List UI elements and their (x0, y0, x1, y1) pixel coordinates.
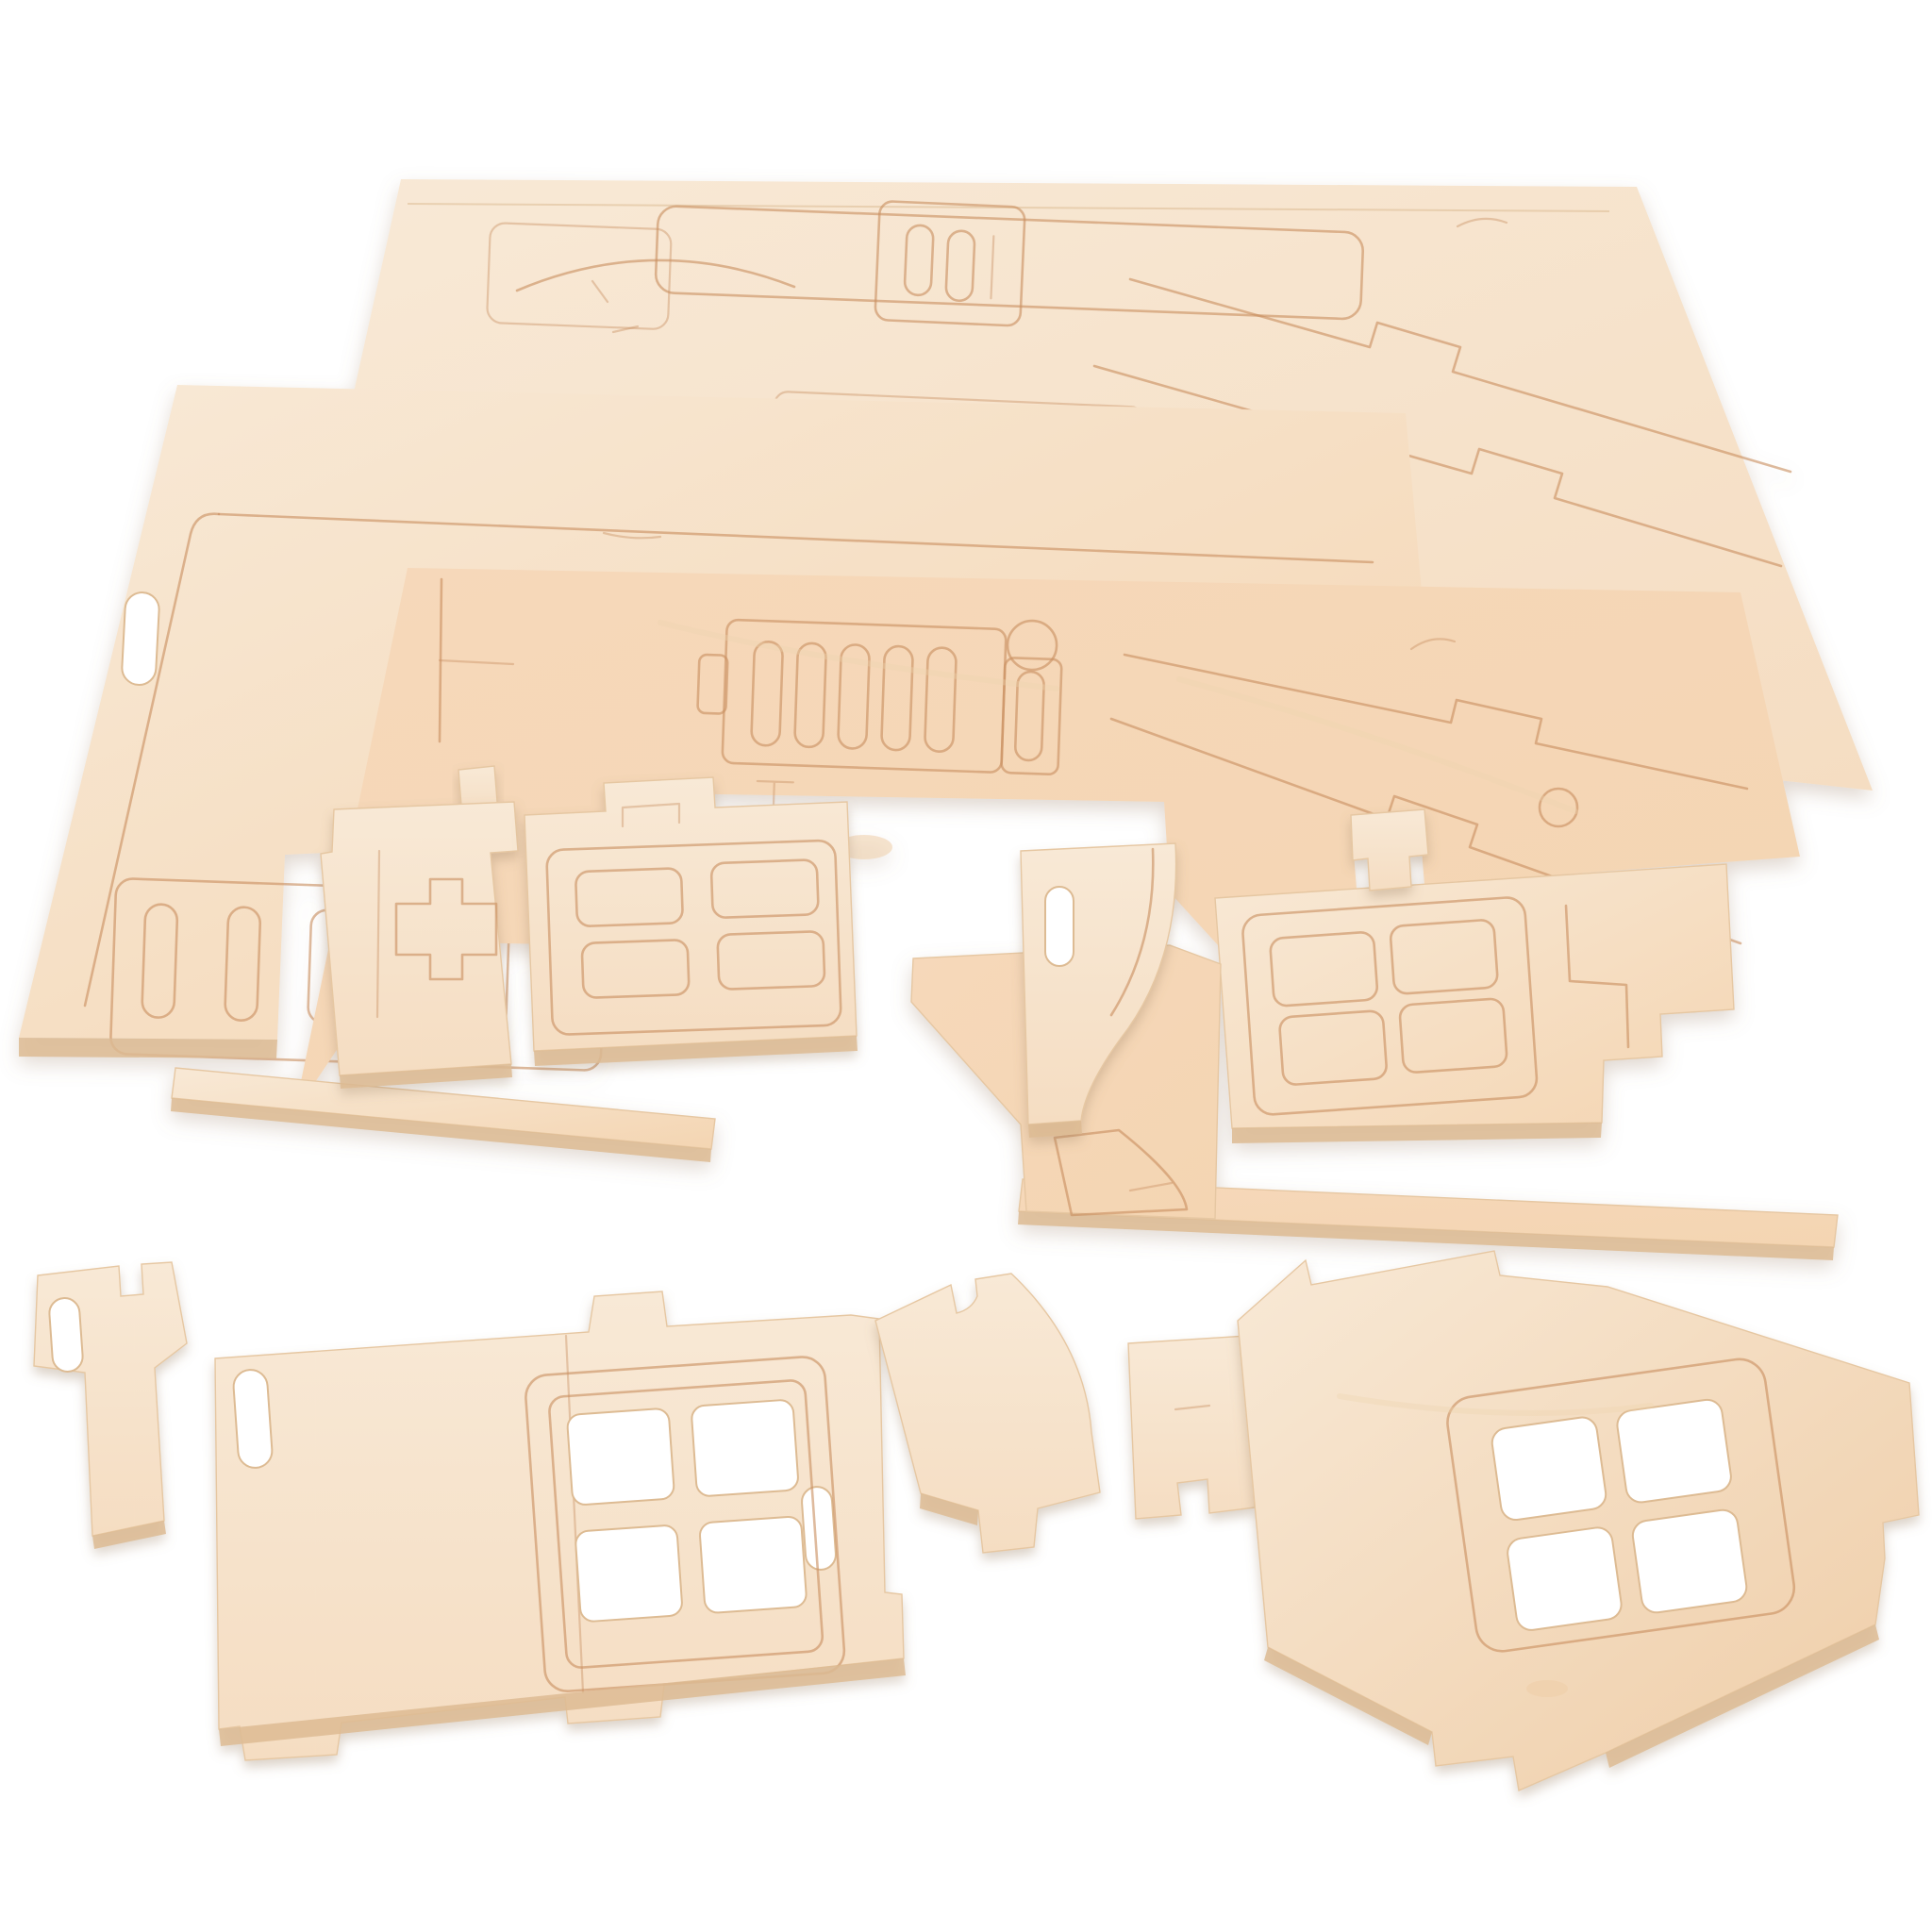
product-photo-canvas: Laser-cut plywood 3D puzzle house kit - … (0, 0, 1932, 1932)
long-wall-piece (215, 1291, 906, 1760)
gable-pane-hole-2 (1615, 1398, 1733, 1505)
capsule-slot-cutout (121, 591, 159, 686)
plank-piece (321, 802, 518, 1089)
sheet-stack (19, 179, 1873, 1260)
connector-tab-piece (1351, 809, 1428, 891)
gable-body (1238, 1251, 1919, 1790)
side-plate-body (1128, 1336, 1255, 1519)
side-plate-piece (1128, 1336, 1255, 1519)
curved-bracket-body (875, 1274, 1100, 1553)
wall-capsule-slot-right (801, 1486, 837, 1571)
door-piece (525, 777, 858, 1066)
loose-pieces (34, 1251, 1919, 1790)
plank-body (321, 802, 518, 1075)
gable-wall-piece (1238, 1251, 1919, 1790)
arch-capsule-slot (1045, 887, 1074, 966)
window-pane-hole-1 (567, 1408, 675, 1506)
gable-pane-hole-4 (1631, 1508, 1749, 1615)
wall-capsule-slot-left (232, 1369, 273, 1469)
connector-piece (34, 1262, 187, 1549)
connector-capsule-slot (48, 1297, 83, 1373)
gable-pane-hole-3 (1506, 1525, 1624, 1632)
window-pane-hole-3 (575, 1524, 682, 1622)
product-photo: Laser-cut plywood 3D puzzle house kit - … (0, 0, 1932, 1932)
window-pane-hole-2 (691, 1399, 798, 1496)
gable-pane-hole-1 (1491, 1415, 1608, 1522)
window-panel-board (1215, 864, 1734, 1128)
sheet-middle-thickness (19, 1038, 277, 1058)
connector-tab-body (1351, 809, 1428, 891)
window-panel-fragment (1215, 864, 1734, 1143)
curved-bracket-piece (875, 1274, 1100, 1553)
window-pane-hole-4 (699, 1516, 807, 1613)
gable-knot (1526, 1680, 1568, 1697)
